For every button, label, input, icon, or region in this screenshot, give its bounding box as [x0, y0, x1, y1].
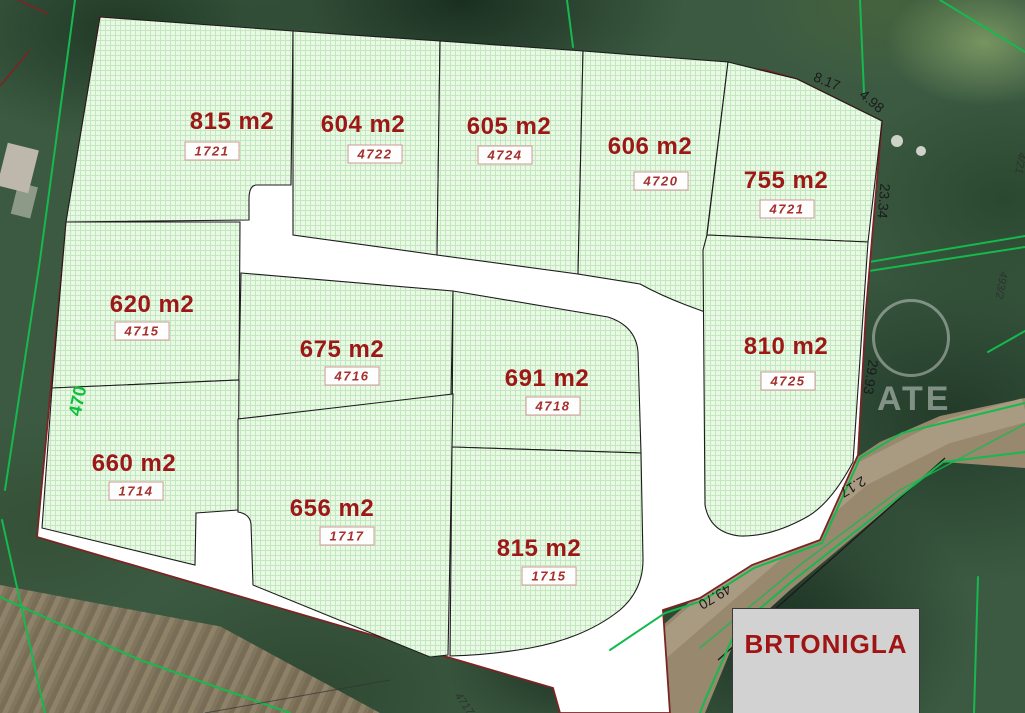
- parcel-area-label: 606 m2: [608, 133, 692, 161]
- white-rooftop-dot-1: [891, 135, 903, 147]
- watermark-circle: [872, 299, 950, 377]
- parcel-number-badge: 4725: [761, 372, 816, 391]
- parcel-shape-656: [238, 394, 453, 657]
- parcel-number-badge: 1714: [109, 482, 164, 501]
- parcel-area-label: 691 m2: [505, 365, 589, 393]
- parcel-area-label: 656 m2: [290, 495, 374, 523]
- parcel-area-label: 810 m2: [744, 333, 828, 361]
- parcel-number-badge: 1715: [522, 567, 577, 586]
- parcel-number-badge: 1717: [320, 527, 375, 546]
- white-rooftop-dot-2: [916, 146, 926, 156]
- place-name-label: BRTONIGLA: [744, 629, 907, 660]
- parcel-number-badge: 4716: [325, 367, 380, 386]
- parcel-number-badge: 4720: [634, 172, 689, 191]
- parcel-number-badge: 4718: [526, 397, 581, 416]
- cadastral-map-canvas: 815 m2 1721 604 m2 4722 605 m2 4724 606 …: [0, 0, 1025, 713]
- place-name-box: BRTONIGLA: [732, 608, 920, 713]
- parcel-area-label: 604 m2: [321, 111, 405, 139]
- parcel-area-label: 675 m2: [300, 336, 384, 364]
- edge-measurement: 23.34: [875, 183, 894, 219]
- parcel-number-badge: 4715: [115, 322, 170, 341]
- parcel-area-label: 755 m2: [744, 167, 828, 195]
- field-boundary-line: [205, 680, 390, 713]
- parcel-area-label: 815 m2: [497, 535, 581, 563]
- parcel-area-label: 605 m2: [467, 113, 551, 141]
- parcel-area-label: 660 m2: [92, 450, 176, 478]
- parcel-number-badge: 4724: [478, 146, 533, 165]
- parcel-number-badge: 4722: [348, 145, 403, 164]
- parcel-shape-604: [293, 31, 440, 255]
- parcel-number-badge: 4721: [760, 200, 815, 219]
- red-boundary-ticks: [0, 0, 48, 86]
- parcel-number-badge: 1721: [185, 142, 240, 161]
- parcel-area-label: 815 m2: [190, 108, 274, 136]
- watermark-text: ATE: [877, 380, 951, 419]
- parcel-area-label: 620 m2: [110, 291, 194, 319]
